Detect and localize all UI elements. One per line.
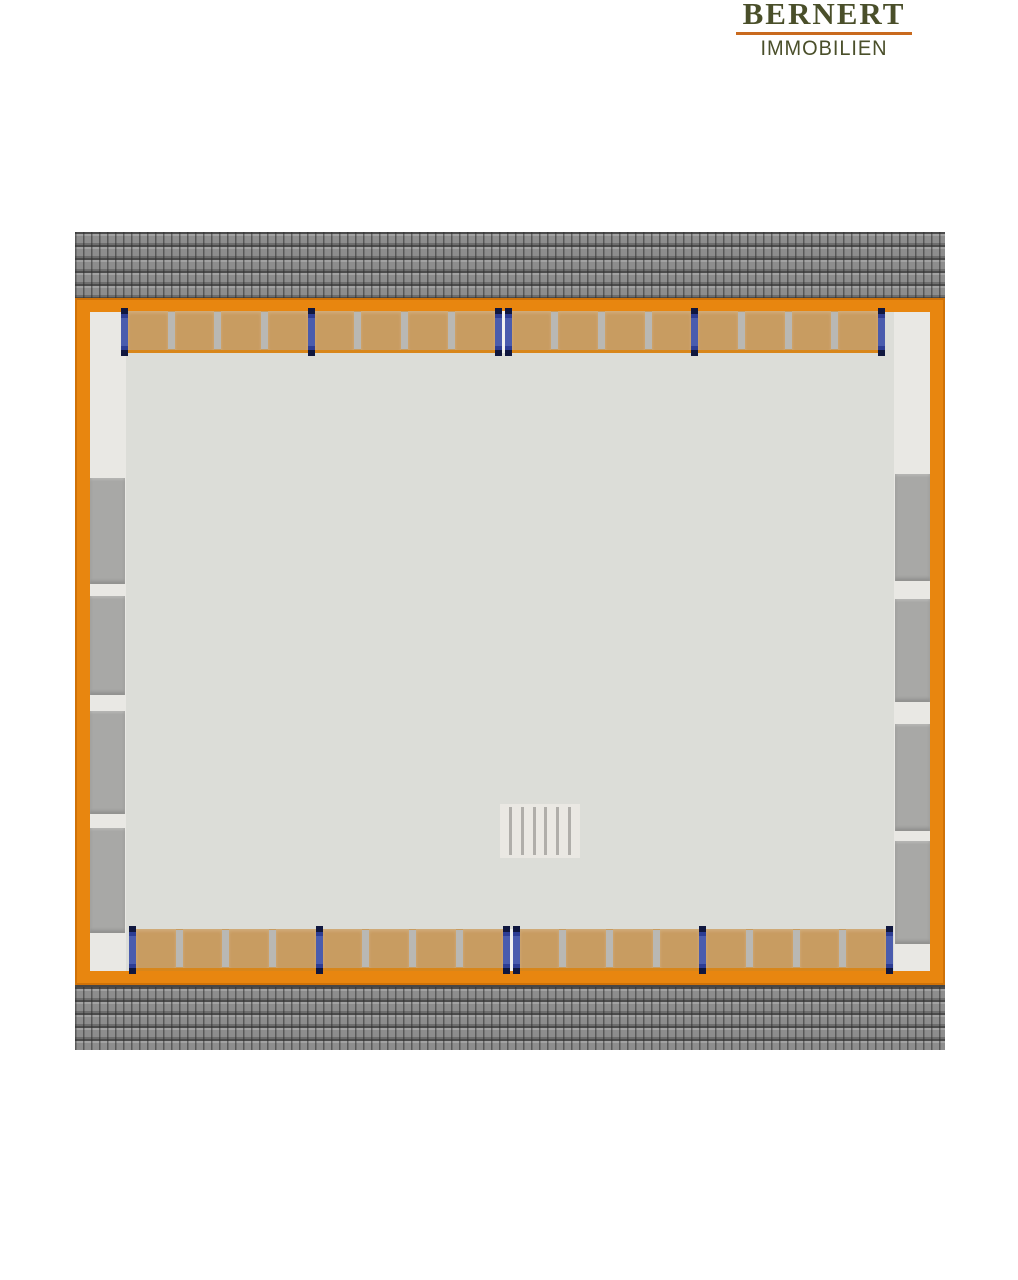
wood-panel bbox=[753, 929, 793, 968]
support-post bbox=[121, 308, 128, 356]
interior-floor bbox=[90, 312, 930, 971]
panel-divider bbox=[785, 312, 792, 349]
panel-divider bbox=[598, 312, 605, 349]
wood-panel bbox=[512, 311, 552, 350]
panel-bay bbox=[315, 311, 495, 353]
support-post bbox=[505, 308, 512, 356]
wood-panel bbox=[838, 311, 878, 350]
panel-bay bbox=[520, 929, 700, 971]
logo: BERNERT IMMOBILIEN bbox=[736, 0, 912, 59]
left-side-block bbox=[90, 596, 125, 695]
panel-divider bbox=[409, 930, 416, 967]
panel-divider bbox=[653, 930, 660, 967]
stair-step-line bbox=[533, 807, 536, 855]
wood-panel bbox=[361, 311, 401, 350]
panel-bay bbox=[128, 311, 308, 353]
logo-tagline-text: IMMOBILIEN bbox=[740, 38, 907, 59]
wood-panel bbox=[652, 311, 692, 350]
panel-bay bbox=[698, 311, 878, 353]
stair-step-line bbox=[509, 807, 512, 855]
wood-panel bbox=[315, 311, 355, 350]
wood-panel bbox=[706, 929, 746, 968]
wood-panel bbox=[792, 311, 832, 350]
wood-panel bbox=[846, 929, 886, 968]
left-side-block bbox=[90, 711, 125, 814]
center-post-pair bbox=[503, 929, 520, 971]
right-side-block bbox=[895, 724, 930, 831]
logo-underline bbox=[736, 32, 912, 35]
floor-plan bbox=[75, 232, 945, 1048]
wood-panel bbox=[613, 929, 653, 968]
exterior-walls bbox=[75, 298, 945, 985]
wood-panel bbox=[229, 929, 269, 968]
panel-divider bbox=[168, 312, 175, 349]
panel-divider bbox=[354, 312, 361, 349]
panel-divider bbox=[401, 312, 408, 349]
wood-panel bbox=[800, 929, 840, 968]
wood-panel bbox=[605, 311, 645, 350]
stair-step-line bbox=[568, 807, 571, 855]
wood-panel bbox=[369, 929, 409, 968]
panel-divider bbox=[456, 930, 463, 967]
panel-divider bbox=[746, 930, 753, 967]
wood-panel bbox=[175, 311, 215, 350]
panel-bay bbox=[706, 929, 886, 971]
wood-panel bbox=[558, 311, 598, 350]
roof-eave-bottom bbox=[75, 985, 945, 1050]
panel-divider bbox=[793, 930, 800, 967]
support-post bbox=[513, 926, 520, 974]
wood-panel bbox=[455, 311, 495, 350]
support-post bbox=[503, 926, 510, 974]
panel-divider bbox=[448, 312, 455, 349]
support-post bbox=[886, 926, 893, 974]
panel-divider bbox=[559, 930, 566, 967]
panel-divider bbox=[645, 312, 652, 349]
panel-divider bbox=[606, 930, 613, 967]
stair-step-line bbox=[556, 807, 559, 855]
wood-panel bbox=[268, 311, 308, 350]
panel-divider bbox=[839, 930, 846, 967]
support-post bbox=[699, 926, 706, 974]
panel-divider bbox=[261, 312, 268, 349]
panel-bay bbox=[136, 929, 316, 971]
panel-bay bbox=[512, 311, 692, 353]
support-post bbox=[308, 308, 315, 356]
roof-eave-top bbox=[75, 232, 945, 300]
support-post bbox=[691, 308, 698, 356]
wood-panel bbox=[698, 311, 738, 350]
stair-step-line bbox=[544, 807, 547, 855]
panel-divider bbox=[176, 930, 183, 967]
wood-panel bbox=[221, 311, 261, 350]
panel-bay bbox=[323, 929, 503, 971]
right-side-block bbox=[895, 841, 930, 944]
bottom-panel-row bbox=[129, 929, 893, 971]
panel-divider bbox=[214, 312, 221, 349]
wood-panel bbox=[660, 929, 700, 968]
left-side-block bbox=[90, 478, 125, 584]
support-post bbox=[129, 926, 136, 974]
center-post-pair bbox=[495, 311, 512, 353]
wood-panel bbox=[136, 929, 176, 968]
staircase bbox=[500, 804, 580, 858]
right-side-block bbox=[895, 474, 930, 581]
panel-divider bbox=[831, 312, 838, 349]
right-side-block bbox=[895, 599, 930, 702]
wood-panel bbox=[276, 929, 316, 968]
panel-divider bbox=[269, 930, 276, 967]
stair-step-line bbox=[521, 807, 524, 855]
wood-panel bbox=[566, 929, 606, 968]
support-post bbox=[495, 308, 502, 356]
top-panel-row bbox=[121, 311, 885, 353]
support-post bbox=[316, 926, 323, 974]
left-side-block bbox=[90, 828, 125, 933]
wood-panel bbox=[408, 311, 448, 350]
panel-divider bbox=[551, 312, 558, 349]
panel-divider bbox=[362, 930, 369, 967]
wood-panel bbox=[128, 311, 168, 350]
panel-divider bbox=[738, 312, 745, 349]
wood-panel bbox=[323, 929, 363, 968]
wood-panel bbox=[463, 929, 503, 968]
wood-panel bbox=[416, 929, 456, 968]
wood-panel bbox=[520, 929, 560, 968]
support-post bbox=[878, 308, 885, 356]
logo-company-text: BERNERT bbox=[736, 0, 912, 31]
wood-panel bbox=[183, 929, 223, 968]
panel-divider bbox=[222, 930, 229, 967]
wood-panel bbox=[745, 311, 785, 350]
